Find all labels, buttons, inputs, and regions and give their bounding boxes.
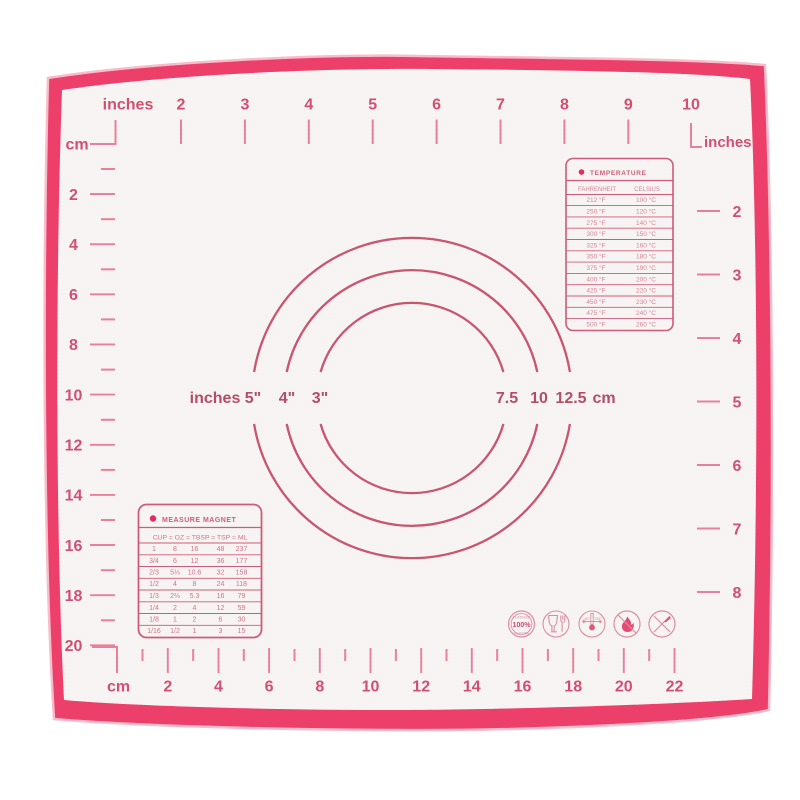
svg-text:SILICONE: SILICONE [514,632,531,636]
svg-text:475 °F: 475 °F [586,309,605,317]
svg-text:14: 14 [65,488,83,505]
svg-text:140 °C: 140 °C [636,219,656,227]
svg-text:30: 30 [238,617,246,624]
svg-text:CUP = OZ = TBSP = TSP = ML: CUP = OZ = TBSP = TSP = ML [153,535,248,542]
svg-text:12: 12 [65,438,83,455]
svg-text:16: 16 [191,546,199,553]
svg-text:200 °C: 200 °C [636,275,656,283]
svg-text:12: 12 [217,605,225,612]
svg-text:2⅔: 2⅔ [170,593,180,600]
svg-text:3: 3 [219,628,223,635]
svg-text:CELSIUS: CELSIUS [634,187,660,193]
svg-text:118: 118 [236,581,247,588]
svg-text:230°: 230° [595,617,603,621]
svg-text:8: 8 [69,337,78,354]
svg-text:7: 7 [733,521,742,538]
svg-text:24: 24 [217,581,225,588]
svg-text:FAHRENHEIT: FAHRENHEIT [578,187,616,193]
svg-text:8: 8 [173,546,177,553]
svg-text:260 °C: 260 °C [636,321,656,329]
svg-text:1/2: 1/2 [170,628,180,635]
svg-text:2: 2 [163,679,172,696]
svg-text:4: 4 [173,581,177,588]
svg-text:4: 4 [69,237,78,254]
svg-text:150 °C: 150 °C [636,230,656,238]
svg-text:22: 22 [666,679,684,696]
svg-text:6: 6 [69,287,78,304]
svg-text:cm: cm [65,137,88,154]
svg-text:36: 36 [217,558,225,565]
svg-text:inches: inches [704,134,752,151]
svg-text:5: 5 [368,97,377,114]
svg-text:12: 12 [191,558,199,565]
svg-text:2/3: 2/3 [149,570,159,577]
svg-text:325 °F: 325 °F [586,241,605,249]
svg-text:7.5: 7.5 [496,390,518,407]
svg-text:6: 6 [219,617,223,624]
svg-text:1/2: 1/2 [149,581,159,588]
svg-text:1/3: 1/3 [149,593,159,600]
svg-text:1/8: 1/8 [149,617,159,624]
svg-text:2: 2 [193,617,197,624]
svg-text:inches: inches [103,97,154,114]
svg-text:10.6: 10.6 [188,570,202,577]
svg-text:250 °F: 250 °F [586,208,605,216]
svg-text:12.5: 12.5 [555,390,586,407]
svg-text:2: 2 [69,187,78,204]
svg-text:4": 4" [279,390,295,407]
svg-text:3: 3 [240,97,249,114]
svg-text:14: 14 [463,679,481,696]
svg-text:20: 20 [615,679,633,696]
svg-text:3: 3 [733,267,742,284]
svg-text:10: 10 [362,679,380,696]
svg-text:15: 15 [238,628,246,635]
svg-text:350 °F: 350 °F [586,253,605,261]
svg-text:1/16: 1/16 [147,628,161,635]
svg-text:18: 18 [65,588,83,605]
svg-text:425 °F: 425 °F [586,287,605,295]
svg-text:100%: 100% [513,622,532,629]
svg-text:-40°: -40° [584,617,591,621]
svg-text:6: 6 [733,458,742,475]
svg-text:59: 59 [238,605,246,612]
svg-text:400 °F: 400 °F [586,275,605,283]
svg-text:1: 1 [193,628,197,635]
svg-text:2: 2 [177,97,186,114]
svg-text:48: 48 [217,546,225,553]
svg-text:18: 18 [564,679,582,696]
svg-text:5: 5 [733,394,742,411]
svg-text:190 °C: 190 °C [636,264,656,272]
svg-text:160 °C: 160 °C [636,241,656,249]
svg-text:120 °C: 120 °C [636,208,656,216]
svg-text:5": 5" [245,390,261,407]
svg-text:240 °C: 240 °C [636,309,656,317]
svg-text:5⅓: 5⅓ [170,570,180,577]
svg-text:1/4: 1/4 [149,605,159,612]
svg-text:cm: cm [592,390,615,407]
svg-text:79: 79 [238,593,246,600]
svg-text:16: 16 [65,538,83,555]
svg-text:2: 2 [173,605,177,612]
svg-text:230 °C: 230 °C [636,298,656,306]
svg-text:180 °C: 180 °C [636,253,656,261]
svg-text:10: 10 [65,387,83,404]
svg-text:10: 10 [682,97,700,114]
svg-text:20: 20 [65,638,83,655]
svg-text:1: 1 [173,617,177,624]
svg-text:16: 16 [514,679,532,696]
svg-text:PLATINUM: PLATINUM [513,616,530,620]
svg-text:2: 2 [733,204,742,221]
svg-text:8: 8 [560,97,569,114]
svg-text:5.3: 5.3 [190,593,200,600]
svg-text:100 °C: 100 °C [636,196,656,204]
svg-text:4: 4 [214,679,223,696]
svg-text:7: 7 [496,97,505,114]
svg-text:158: 158 [236,570,248,577]
svg-text:177: 177 [236,558,248,565]
svg-text:4: 4 [193,605,197,612]
svg-text:375 °F: 375 °F [586,264,605,272]
svg-text:275 °F: 275 °F [586,219,605,227]
svg-text:3/4: 3/4 [149,558,159,565]
svg-text:237: 237 [236,546,248,553]
svg-text:32: 32 [217,570,225,577]
svg-text:8: 8 [733,585,742,602]
svg-text:4: 4 [304,97,313,114]
svg-text:TEMPERATURE: TEMPERATURE [590,170,647,177]
svg-text:212 °F: 212 °F [586,196,605,204]
svg-text:1: 1 [152,546,156,553]
svg-text:inches: inches [190,390,241,407]
svg-text:8: 8 [193,581,197,588]
svg-text:6: 6 [265,679,274,696]
svg-text:220 °C: 220 °C [636,287,656,295]
svg-text:500 °F: 500 °F [586,321,605,329]
svg-text:MEASURE MAGNET: MEASURE MAGNET [162,517,237,524]
svg-text:300 °F: 300 °F [586,230,605,238]
svg-text:cm: cm [107,679,130,696]
svg-text:3": 3" [312,390,328,407]
svg-text:8: 8 [315,679,324,696]
svg-text:6: 6 [173,558,177,565]
svg-text:16: 16 [217,593,225,600]
svg-text:450 °F: 450 °F [586,298,605,306]
svg-text:12: 12 [412,679,430,696]
svg-text:9: 9 [624,97,633,114]
svg-text:4: 4 [733,331,742,348]
svg-text:6: 6 [432,97,441,114]
svg-text:10: 10 [530,390,548,407]
